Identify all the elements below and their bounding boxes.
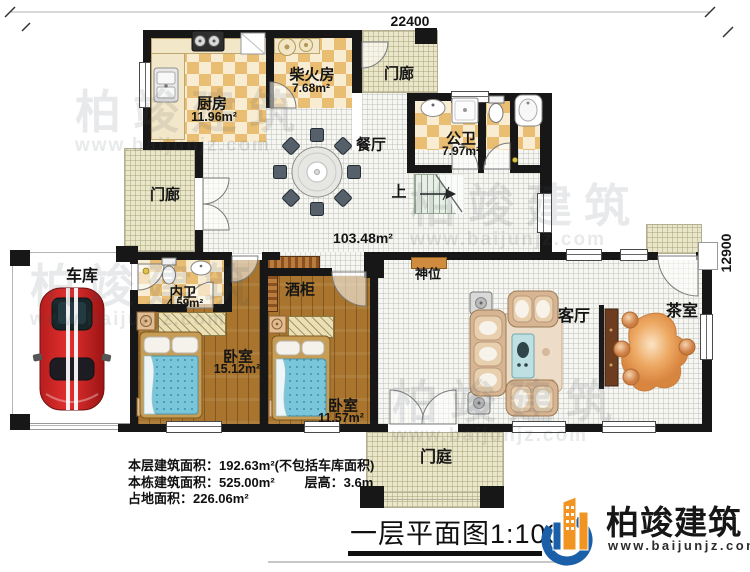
shrine-label: 神位 [415, 264, 441, 283]
wall [540, 233, 552, 254]
pillar [10, 414, 30, 430]
wall [130, 252, 232, 260]
wall [602, 252, 620, 260]
room-label-garage: 车库 [66, 262, 98, 286]
dining-floor [203, 142, 266, 150]
note-line2a: 本栋建筑面积：525.00m² [128, 475, 275, 490]
room-label-entry: 门庭 [420, 443, 452, 467]
title-underline [348, 551, 542, 556]
note-line3: 占地面积：226.06m² [128, 491, 374, 508]
room-area-inner-bath: 4.59m² [167, 298, 203, 310]
wall [407, 93, 451, 101]
wall [143, 38, 151, 62]
exterior-step [698, 242, 718, 270]
wall [552, 252, 566, 260]
note-line1: 本层建筑面积：192.63m²(不包括车库面积) [128, 458, 374, 475]
wall [268, 268, 332, 276]
brand-url: www.baijunjz.com [608, 538, 750, 553]
wall [262, 252, 280, 260]
wall [213, 304, 232, 312]
wardrobe [288, 316, 334, 338]
window [537, 193, 552, 233]
floor-plan-canvas: 柏竣建筑 www.baijunjz.com 柏竣建筑 www.baijunjz.… [0, 0, 750, 572]
brand-logo-icon [536, 492, 602, 568]
wall [118, 424, 166, 432]
wall [143, 142, 203, 150]
window [566, 249, 602, 261]
wall [702, 360, 712, 424]
staircase [414, 174, 464, 214]
pillar [10, 250, 30, 266]
page-title: 一层平面图1:100 [350, 512, 563, 551]
room-label-porch-left: 门廊 [150, 184, 180, 205]
room-label-porch-top: 门廊 [384, 63, 414, 84]
window [451, 91, 489, 103]
wall [458, 424, 512, 432]
note-line2b: 层高：3.6m [305, 475, 374, 490]
stairs-up-label: 上 [391, 181, 406, 202]
room-label-dining: 餐厅 [356, 134, 386, 155]
wall [478, 165, 484, 173]
wall [195, 150, 203, 178]
wall [195, 230, 203, 254]
brand-name: 柏竣建筑 [606, 496, 742, 544]
firewood-counter [274, 38, 320, 54]
hall-area-label: 103.48m² [333, 230, 393, 246]
pillar [480, 486, 504, 508]
room-area-public-bath: 7.97m² [442, 144, 480, 158]
kitchen-counter [151, 38, 243, 54]
room-area-kitchen: 11.96m² [191, 110, 237, 124]
wall [266, 38, 274, 108]
window [166, 421, 222, 433]
room-area-firewood: 7.68m² [292, 81, 330, 95]
wall [648, 252, 658, 260]
dimension-top: 22400 [391, 13, 430, 29]
wall [510, 101, 518, 165]
room-area-bedroom-small: 11.57m² [318, 411, 364, 425]
room-area-bedroom-big: 15.12m² [214, 362, 261, 376]
wall [368, 252, 560, 260]
wall [260, 260, 268, 424]
area-notes: 本层建筑面积：192.63m²(不包括车库面积) 本栋建筑面积：525.00m²… [128, 458, 374, 508]
window [602, 421, 656, 433]
title-underline-thin [268, 561, 558, 563]
wine-cabinet-label: 酒柜 [285, 279, 315, 300]
wall [340, 424, 388, 432]
pillar [415, 28, 437, 44]
room-label-tea: 茶室 [666, 297, 698, 321]
living-floor [378, 260, 702, 424]
wall [143, 30, 362, 38]
wall [224, 260, 232, 304]
wall [566, 424, 602, 432]
wardrobe [158, 312, 226, 336]
wall [656, 424, 712, 432]
window [620, 249, 648, 261]
window [139, 62, 151, 108]
wall [540, 93, 552, 193]
note-line2: 本栋建筑面积：525.00m²层高：3.6m [128, 475, 374, 492]
wall [407, 101, 415, 165]
wall [352, 30, 362, 93]
dimension-right: 12900 [718, 234, 734, 273]
tea-platform [646, 224, 702, 254]
wall [370, 268, 378, 424]
room-label-living: 客厅 [558, 302, 590, 326]
wall [222, 424, 304, 432]
window [512, 421, 566, 433]
window [700, 314, 713, 360]
dining-floor [266, 108, 352, 150]
wall [407, 165, 452, 173]
